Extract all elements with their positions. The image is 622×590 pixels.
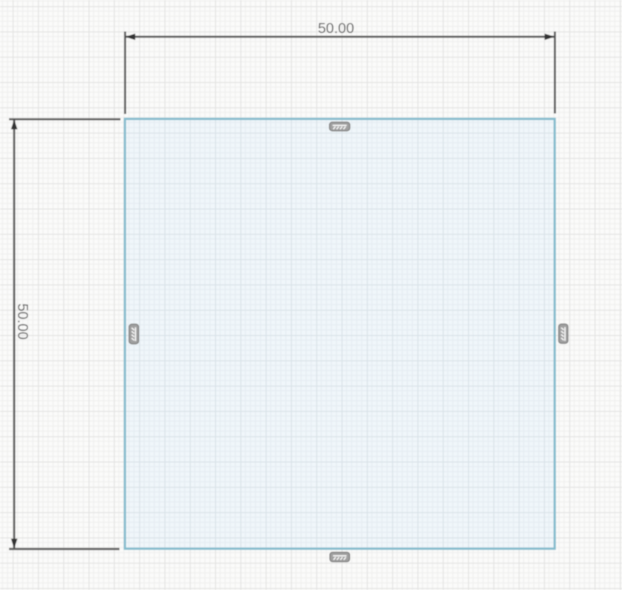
svg-text:50.00: 50.00	[14, 303, 30, 339]
svg-text:50.00: 50.00	[318, 21, 354, 37]
